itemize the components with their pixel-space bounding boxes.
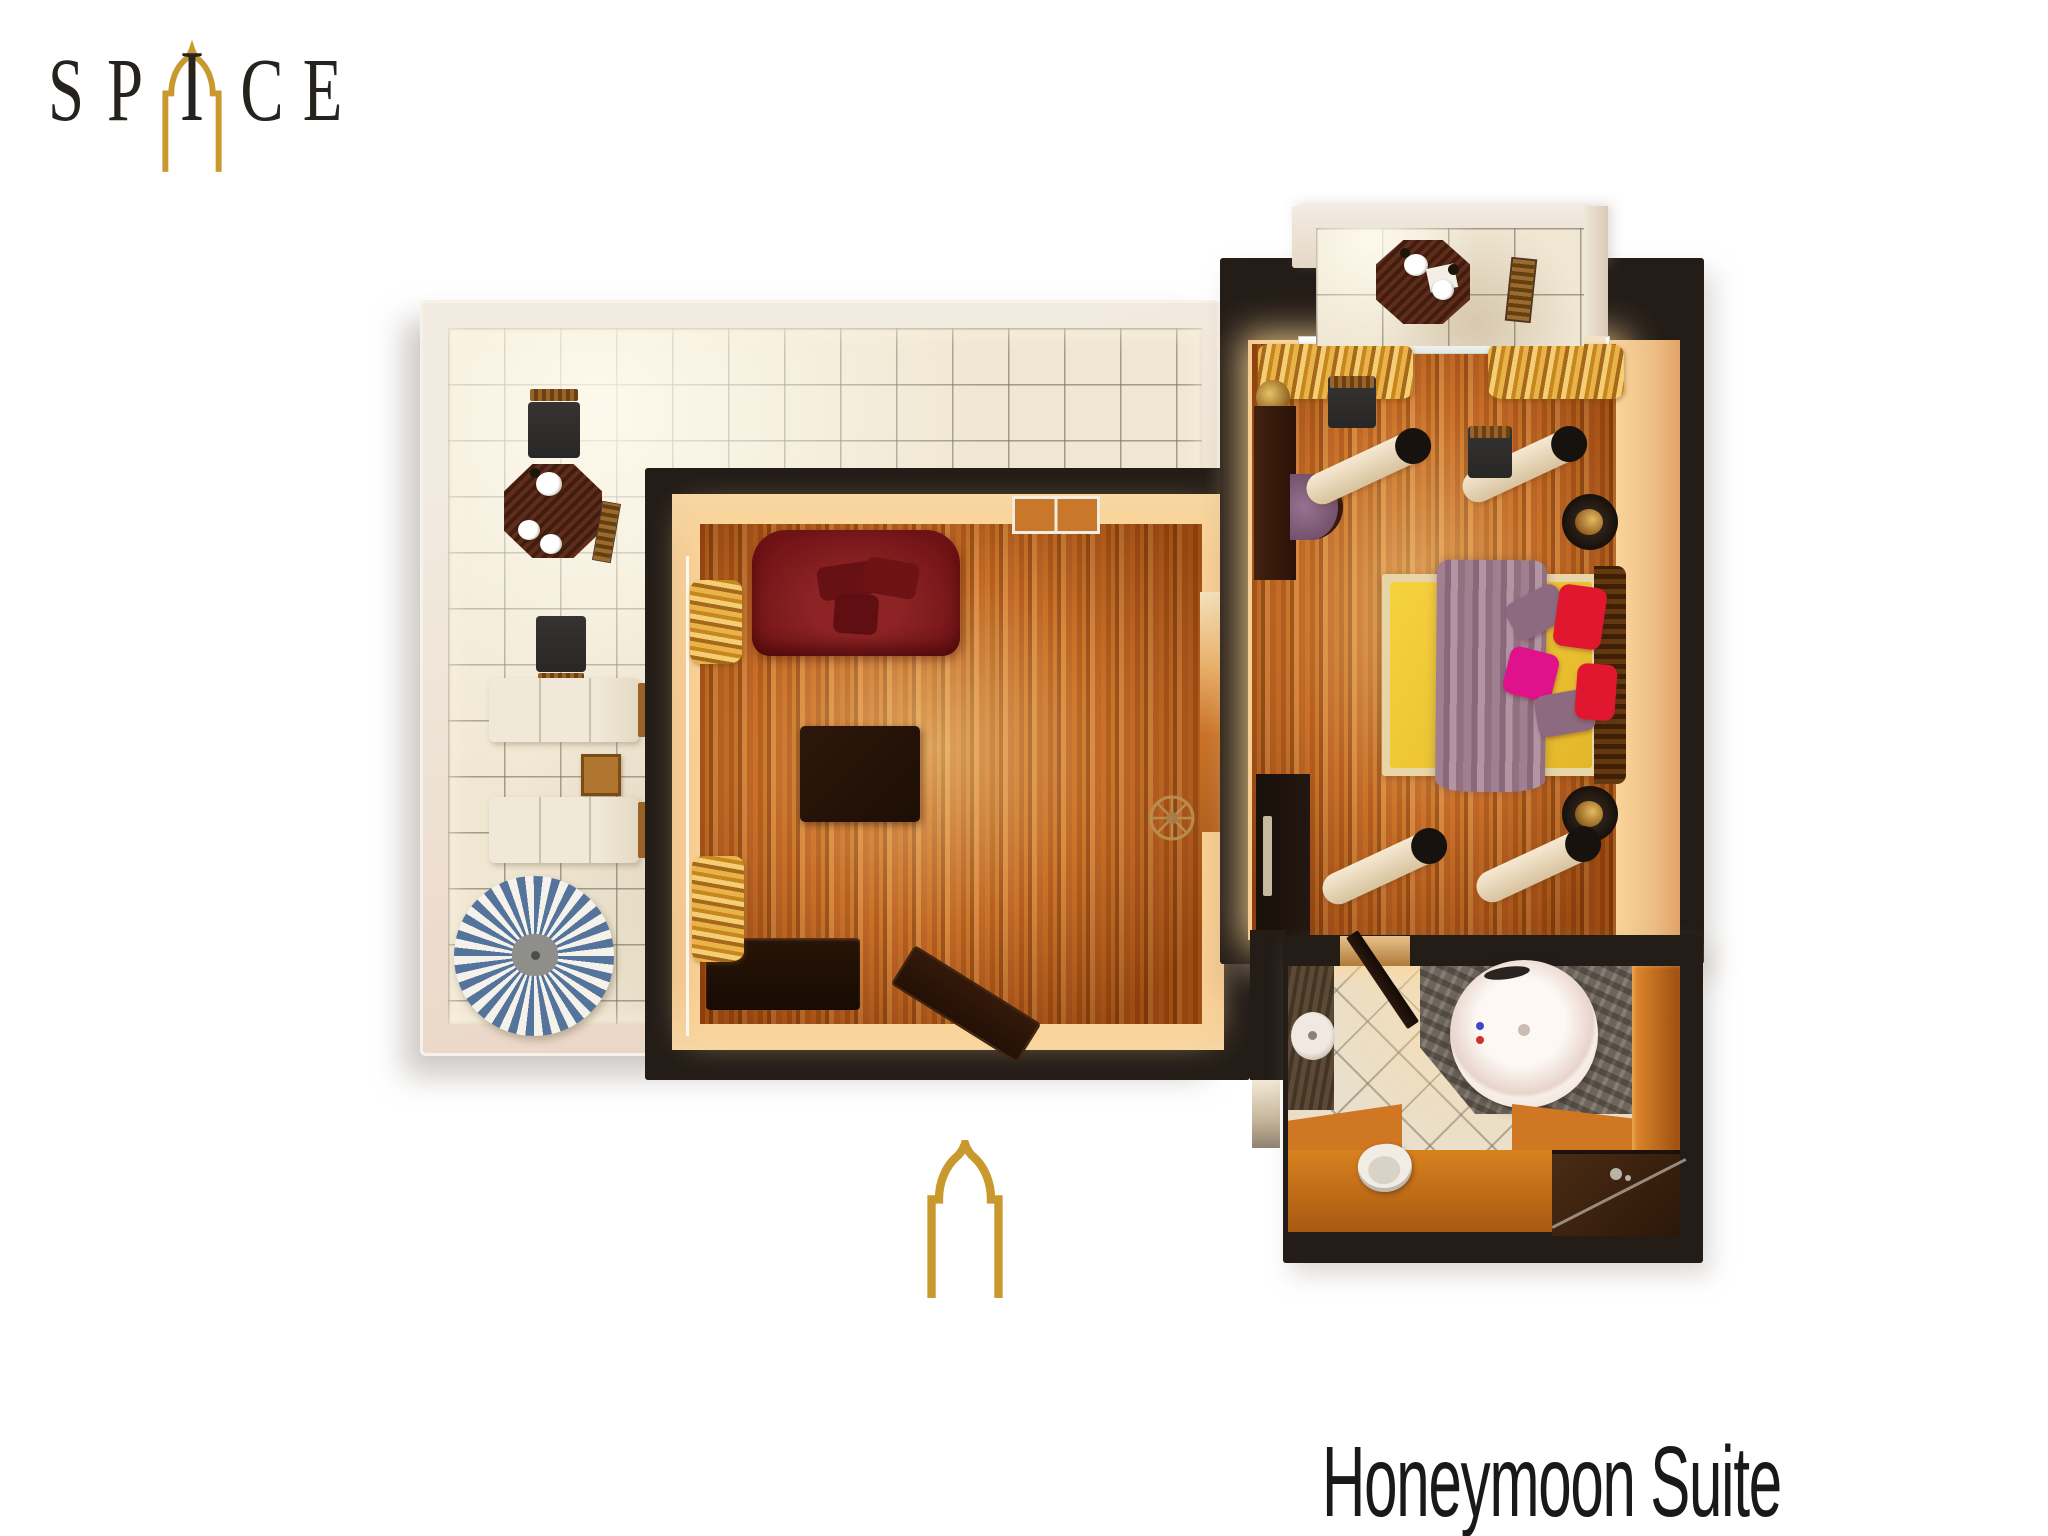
entry-passage [1252, 1080, 1280, 1148]
terrace-side-table [581, 754, 621, 796]
wardrobe [1256, 774, 1310, 936]
balcony-table [1376, 240, 1470, 324]
balcony-wall [1584, 206, 1608, 336]
bedside-lamp [1562, 494, 1618, 550]
entry-wall [1250, 930, 1286, 1080]
faucet [1610, 1168, 1622, 1180]
ceiling-fan-icon [1148, 794, 1196, 842]
sun-lounger [489, 678, 639, 742]
jacuzzi-tub [1450, 960, 1598, 1108]
washbasin [1291, 1012, 1335, 1060]
tub-faucet [1483, 964, 1530, 982]
terrace-chair [536, 616, 586, 672]
sun-lounger [489, 797, 639, 863]
page-title: Honeymoon Suite [1322, 1430, 1781, 1535]
balcony-chair [1328, 376, 1376, 428]
logo-letter: E [302, 16, 342, 166]
logo-letter: P [107, 16, 143, 166]
pillow [1574, 663, 1618, 722]
spice-logo: S P I C E [36, 12, 350, 170]
curtain-rod [686, 556, 689, 1036]
moorish-arch-door-icon [916, 1140, 1014, 1298]
pillow [1552, 583, 1608, 651]
curtains [692, 856, 744, 962]
logo-letter: S [48, 16, 84, 166]
terrace-chair [528, 402, 580, 458]
terrace-dining-table [504, 464, 602, 558]
parasol [454, 876, 614, 1036]
logo-arch-letter: I [154, 12, 230, 162]
curtains [690, 580, 742, 664]
parasol-pole [512, 934, 558, 976]
logo-letter: I [180, 12, 204, 162]
sofa [752, 530, 960, 656]
logo-letter: C [240, 16, 283, 166]
balcony-chair [1468, 426, 1512, 478]
coffee-table [800, 726, 920, 822]
curtains [1488, 344, 1624, 399]
terrace-door [1012, 496, 1100, 534]
vanity-counter [1552, 1150, 1680, 1236]
floor-plan-page: S P I C E [0, 0, 2048, 1536]
